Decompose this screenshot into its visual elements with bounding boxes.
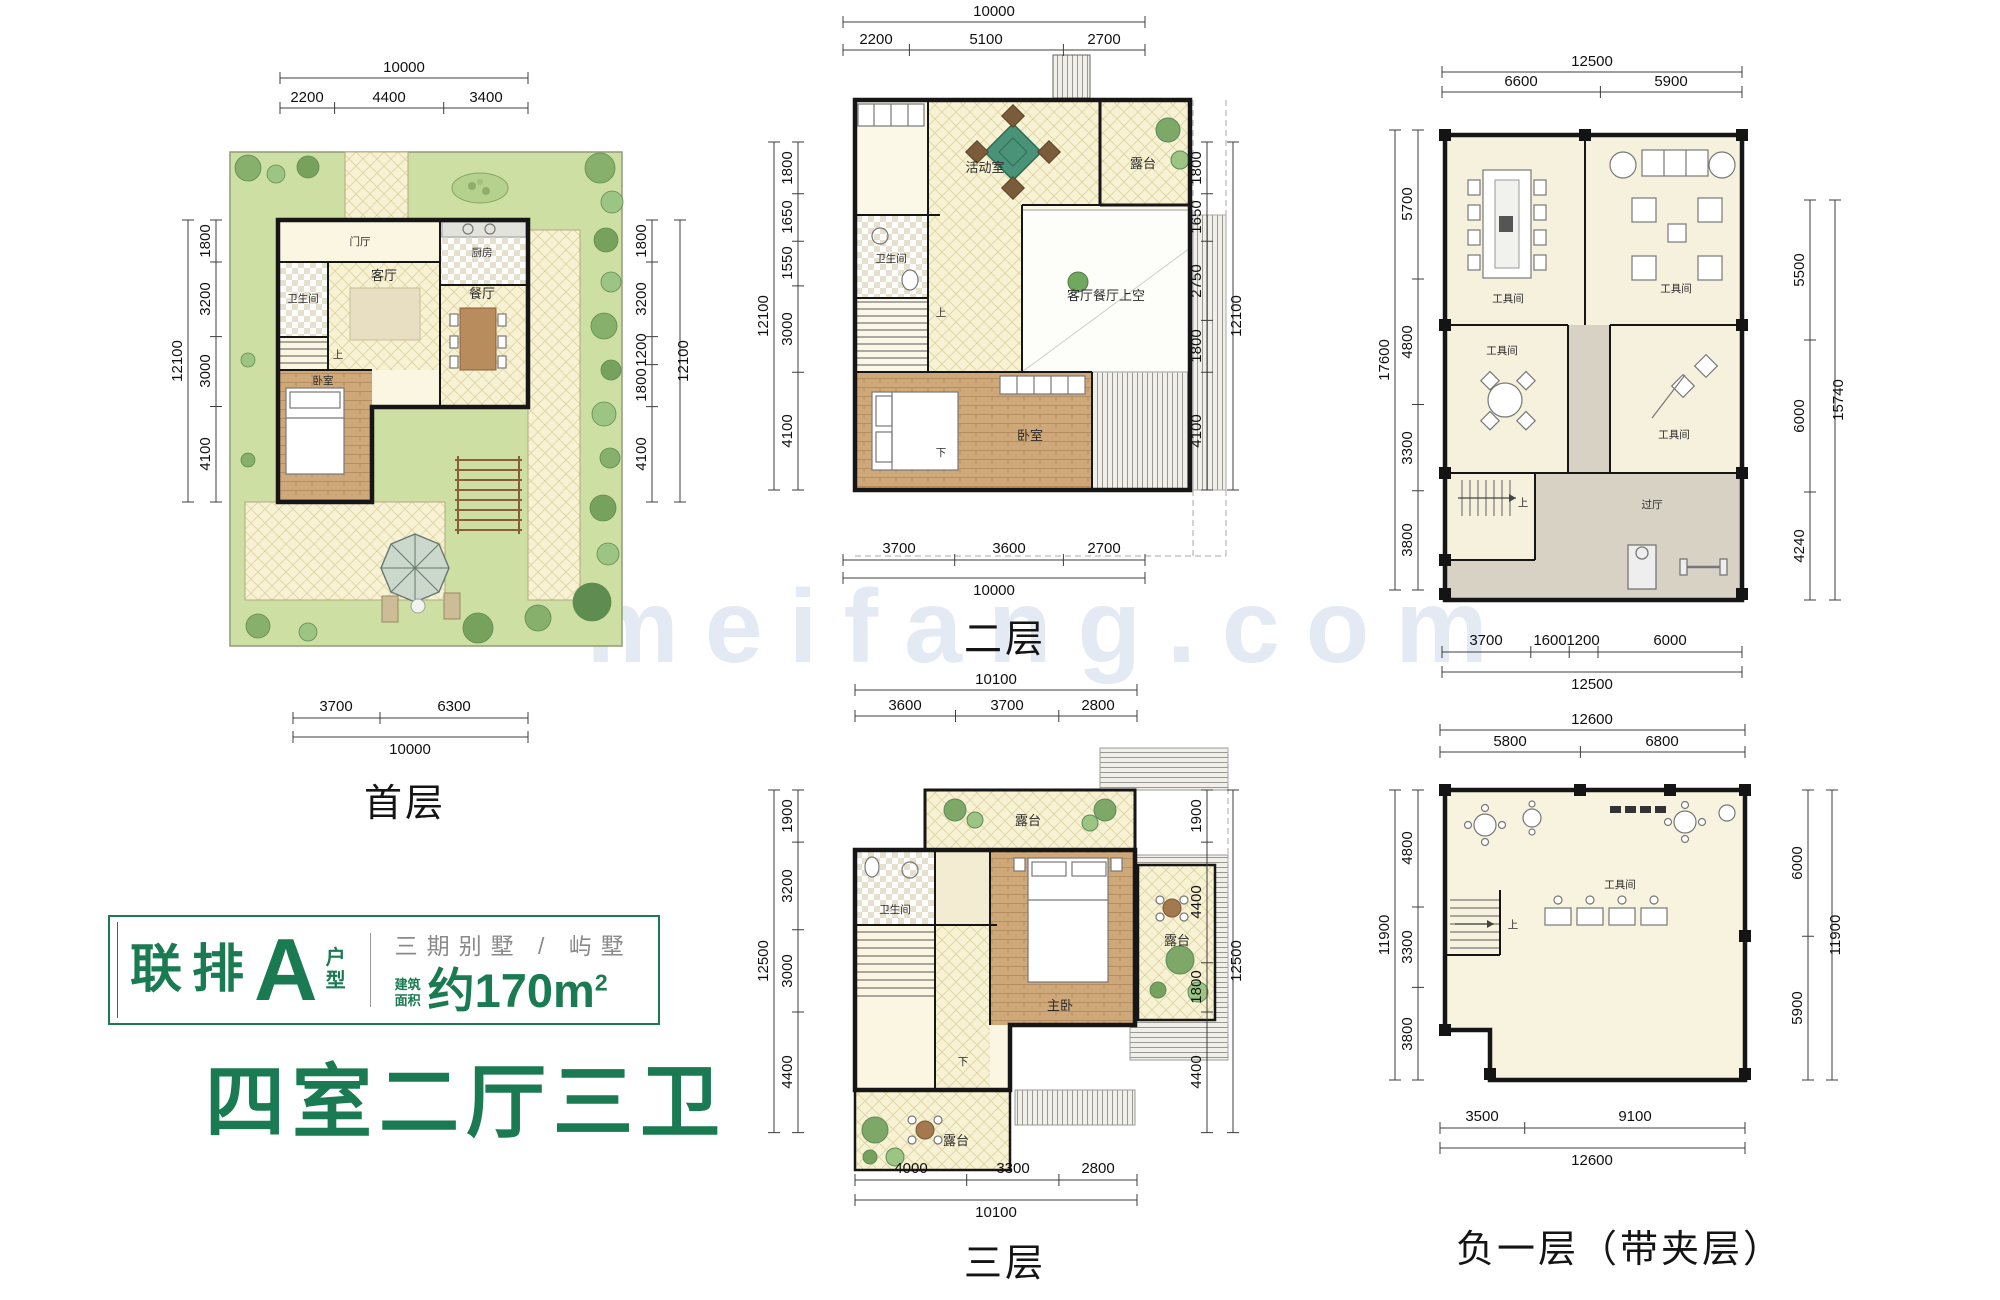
- dim-label: 6800: [1645, 733, 1678, 750]
- room-label-up: 上: [936, 307, 947, 319]
- room-label-bed: 卧室: [1017, 428, 1043, 443]
- dim-chain-bottom: 3700 6300 10000: [293, 698, 528, 758]
- dim-label: 1800: [1188, 329, 1205, 362]
- dim-chain-top: 10000 2200 5100 2700: [843, 3, 1145, 56]
- dim-label: 12100: [1228, 295, 1245, 337]
- dim-label: 1200: [1566, 632, 1599, 649]
- dim-chain-left: 12100 1800 3200 3000 4100: [169, 220, 222, 502]
- dim-label: 10000: [389, 741, 431, 758]
- dim-label: 12100: [755, 295, 772, 337]
- dim-label: 3700: [1469, 632, 1502, 649]
- room-label-entry: 门厅: [350, 235, 371, 248]
- dim-chain-top: 12500 6600 5900: [1442, 53, 1742, 98]
- dim-label: 12500: [1571, 53, 1613, 70]
- dim-label: 12500: [1571, 676, 1613, 693]
- dim-label: 1800: [1188, 970, 1205, 1003]
- unit-type-label: 户 型: [326, 947, 346, 993]
- unit-details: 三期别墅 / 屿墅 建筑 面积 约170m2: [395, 927, 633, 1014]
- dim-chain-left: 17600 5700 4800 3300 3800: [1376, 130, 1424, 590]
- room-label-terrace-right: 露台: [1164, 933, 1190, 948]
- room-label-void: 客厅餐厅上空: [1067, 288, 1145, 303]
- dim-chain-top: 10000 2200 4400 3400: [280, 59, 528, 114]
- unit-type-bottom: 型: [326, 970, 346, 993]
- dim-label: 10100: [975, 671, 1017, 688]
- dim-label: 3000: [779, 312, 796, 345]
- room-label-down: 下: [936, 447, 947, 459]
- dim-label: 12100: [169, 340, 186, 382]
- divider: [370, 933, 371, 1007]
- dim-label: 5500: [1791, 253, 1808, 286]
- unit-type-top: 户: [326, 947, 346, 970]
- room-label-tool1: 工具间: [1492, 292, 1524, 305]
- dim-chain-top: 10100 3600 3700 2800: [855, 671, 1137, 722]
- dim-label: 4240: [1791, 529, 1808, 562]
- dim-label: 1900: [779, 799, 796, 832]
- dim-label: 12500: [755, 940, 772, 982]
- dim-label: 17600: [1376, 339, 1393, 381]
- room-label-down: 下: [958, 1056, 969, 1068]
- dim-label: 3200: [197, 282, 214, 315]
- dim-label: 1800: [633, 368, 650, 401]
- room-label-terrace: 露台: [1130, 156, 1156, 171]
- floorplan-first-floor: 门厅 卫生间 客厅 厨房 餐厅 卧室 上 10000 2200 4400 340…: [160, 40, 720, 770]
- dim-label: 12600: [1571, 1152, 1613, 1169]
- room-label-terrace-bottom: 露台: [943, 1133, 969, 1148]
- dim-label: 1900: [1188, 799, 1205, 832]
- floorplan-basement-upper: 工具间 工具间 工具间 工具间 过厅 上 12500 6600 5900 176…: [1380, 30, 1860, 700]
- dim-chain-top: 12600 5800 6800: [1440, 711, 1745, 758]
- rooms-summary: 四室二厅三卫: [205, 1038, 727, 1154]
- unit-area: 建筑 面积 约170m2: [395, 967, 633, 1014]
- area-label-bottom: 面积: [395, 993, 421, 1009]
- dim-label: 3600: [888, 697, 921, 714]
- dim-label: 3200: [633, 282, 650, 315]
- dim-label: 11900: [1827, 915, 1844, 956]
- dim-label: 1650: [1188, 200, 1205, 233]
- dim-label: 3300: [996, 1160, 1029, 1177]
- dim-label: 5100: [969, 31, 1002, 48]
- dim-chain-bottom: 3700 1600 1200 6000 12500: [1442, 632, 1742, 693]
- dim-label: 9100: [1618, 1108, 1651, 1125]
- dim-chain-right: 5500 6000 4240 15740: [1791, 200, 1847, 600]
- room-label-bath: 卫生间: [287, 292, 319, 305]
- dim-label: 10000: [973, 582, 1015, 599]
- dim-label: 3600: [992, 540, 1025, 557]
- room-label-bed: 卧室: [313, 374, 334, 387]
- room-label-up: 上: [333, 349, 344, 361]
- area-label: 建筑 面积: [395, 977, 421, 1014]
- room-label-tool4: 工具间: [1658, 428, 1690, 441]
- area-label-top: 建筑: [395, 977, 421, 993]
- dim-label: 3300: [1399, 930, 1416, 963]
- dim-chain-left: 12100 1800 1650 1550 3000 4100: [755, 142, 804, 490]
- dim-label: 4000: [894, 1160, 927, 1177]
- dim-label: 10100: [975, 1204, 1017, 1221]
- room-label-bath: 卫生间: [875, 252, 907, 265]
- dim-label: 4100: [197, 437, 214, 470]
- room-label-up: 上: [1518, 497, 1529, 509]
- title-third-floor: 三层: [930, 1232, 1080, 1287]
- dim-label: 1550: [779, 246, 796, 279]
- room-label-living: 客厅: [371, 268, 397, 283]
- dim-label: 4400: [372, 89, 405, 106]
- dim-label: 12500: [1228, 940, 1245, 982]
- dim-label: 1800: [1188, 151, 1205, 184]
- inner-border-line: [117, 922, 118, 1018]
- dim-chain-bottom: 3700 3600 2700 10000: [843, 540, 1145, 599]
- dim-label: 1800: [779, 151, 796, 184]
- dim-label: 6600: [1504, 73, 1537, 90]
- dim-label: 2200: [290, 89, 323, 106]
- dim-chain-right: 1800 3200 1200 1800 4100 12100: [633, 220, 692, 502]
- dim-label: 11900: [1376, 915, 1393, 956]
- dim-label: 4400: [1188, 885, 1205, 918]
- dim-label: 15740: [1830, 379, 1847, 421]
- dim-label: 2800: [1081, 1160, 1114, 1177]
- dim-label: 3400: [469, 89, 502, 106]
- dim-label: 12100: [675, 340, 692, 382]
- room-label-tool2: 工具间: [1660, 282, 1692, 295]
- dim-label: 2700: [1087, 31, 1120, 48]
- dim-chain-bottom: 3500 9100 12600: [1440, 1108, 1745, 1169]
- room-label-up: 上: [1508, 919, 1519, 931]
- dim-label: 6000: [1789, 846, 1806, 879]
- dim-label: 6300: [437, 698, 470, 715]
- dim-label: 1650: [779, 200, 796, 233]
- dim-label: 10000: [973, 3, 1015, 20]
- room-label-kitchen: 厨房: [472, 246, 493, 259]
- dim-label: 12600: [1571, 711, 1613, 728]
- dim-chain-left: 12500 1900 3200 3000 4400: [755, 790, 804, 1133]
- floorplan-third-floor: 露台 卫生间 主卧 露台 露台 下 10100 3600 3700 2800 1…: [760, 660, 1300, 1300]
- room-label-master: 主卧: [1047, 998, 1073, 1013]
- title-basement: 负一层（带夹层）: [1430, 1218, 1810, 1273]
- room-label-activity: 活动室: [965, 160, 1004, 175]
- dim-label: 4800: [1399, 831, 1416, 864]
- dim-label: 2800: [1081, 697, 1114, 714]
- room-label-hall: 过厅: [1642, 498, 1663, 511]
- dim-label: 3700: [319, 698, 352, 715]
- room-label-dining: 餐厅: [469, 286, 495, 301]
- dim-label: 4400: [779, 1055, 796, 1088]
- dim-label: 4100: [1188, 414, 1205, 447]
- dim-label: 6000: [1791, 399, 1808, 432]
- dim-label: 3000: [779, 954, 796, 987]
- dim-label: 2750: [1188, 264, 1205, 297]
- floorplan-second-floor: 活动室 卫生间 露台 客厅餐厅上空 卧室 上 下 10000 2200 5100…: [760, 0, 1300, 660]
- title-second-floor: 二层: [930, 608, 1080, 663]
- dim-label: 5700: [1399, 187, 1416, 220]
- unit-info-box: 联排 A 户 型 三期别墅 / 屿墅 建筑 面积 约170m2: [108, 915, 660, 1025]
- dim-label: 5900: [1789, 991, 1806, 1024]
- dim-label: 3000: [197, 354, 214, 387]
- dim-label: 3200: [779, 869, 796, 902]
- dim-label: 3300: [1399, 431, 1416, 464]
- room-label-terrace-top: 露台: [1015, 813, 1041, 828]
- dim-label: 4800: [1399, 325, 1416, 358]
- title-first-floor: 首层: [330, 772, 480, 827]
- dim-label: 3800: [1399, 1017, 1416, 1050]
- unit-series: 联排: [130, 944, 254, 996]
- room-label-bath: 卫生间: [879, 903, 911, 916]
- dim-label: 3700: [882, 540, 915, 557]
- unit-letter: A: [254, 930, 318, 1009]
- dim-chain-bottom: 4000 3300 2800 10100: [855, 1160, 1137, 1221]
- dim-label: 1200: [633, 333, 650, 366]
- dim-label: 2200: [859, 31, 892, 48]
- dim-label: 5900: [1654, 73, 1687, 90]
- dim-chain-left: 11900 4800 3300 3800: [1376, 790, 1424, 1080]
- dim-label: 3500: [1465, 1108, 1498, 1125]
- dim-label: 1800: [197, 224, 214, 257]
- dim-label: 3800: [1399, 523, 1416, 556]
- dim-label: 10000: [383, 59, 425, 76]
- dim-label: 5800: [1493, 733, 1526, 750]
- dim-label: 1600: [1533, 632, 1566, 649]
- dim-label: 3700: [990, 697, 1023, 714]
- area-value: 约170m2: [428, 967, 608, 1014]
- dim-label: 6000: [1653, 632, 1686, 649]
- room-label-tool: 工具间: [1604, 878, 1636, 891]
- dim-label: 2700: [1087, 540, 1120, 557]
- floorplan-basement-lower: 工具间 上 12600 5800 6800 11900 4800 3300 38…: [1380, 700, 1860, 1299]
- dim-chain-right: 6000 5900 11900: [1789, 790, 1844, 1080]
- room-label-tool3: 工具间: [1486, 344, 1518, 357]
- dim-label: 1800: [633, 224, 650, 257]
- area-superscript: 2: [595, 969, 608, 995]
- dim-label: 4400: [1188, 1055, 1205, 1088]
- floorplan-sheet: { "accent": "#1a7a52", "watermark": "mei…: [0, 0, 2000, 1299]
- dim-label: 4100: [633, 437, 650, 470]
- unit-subtitle: 三期别墅 / 屿墅: [395, 927, 633, 961]
- dim-label: 4100: [779, 414, 796, 447]
